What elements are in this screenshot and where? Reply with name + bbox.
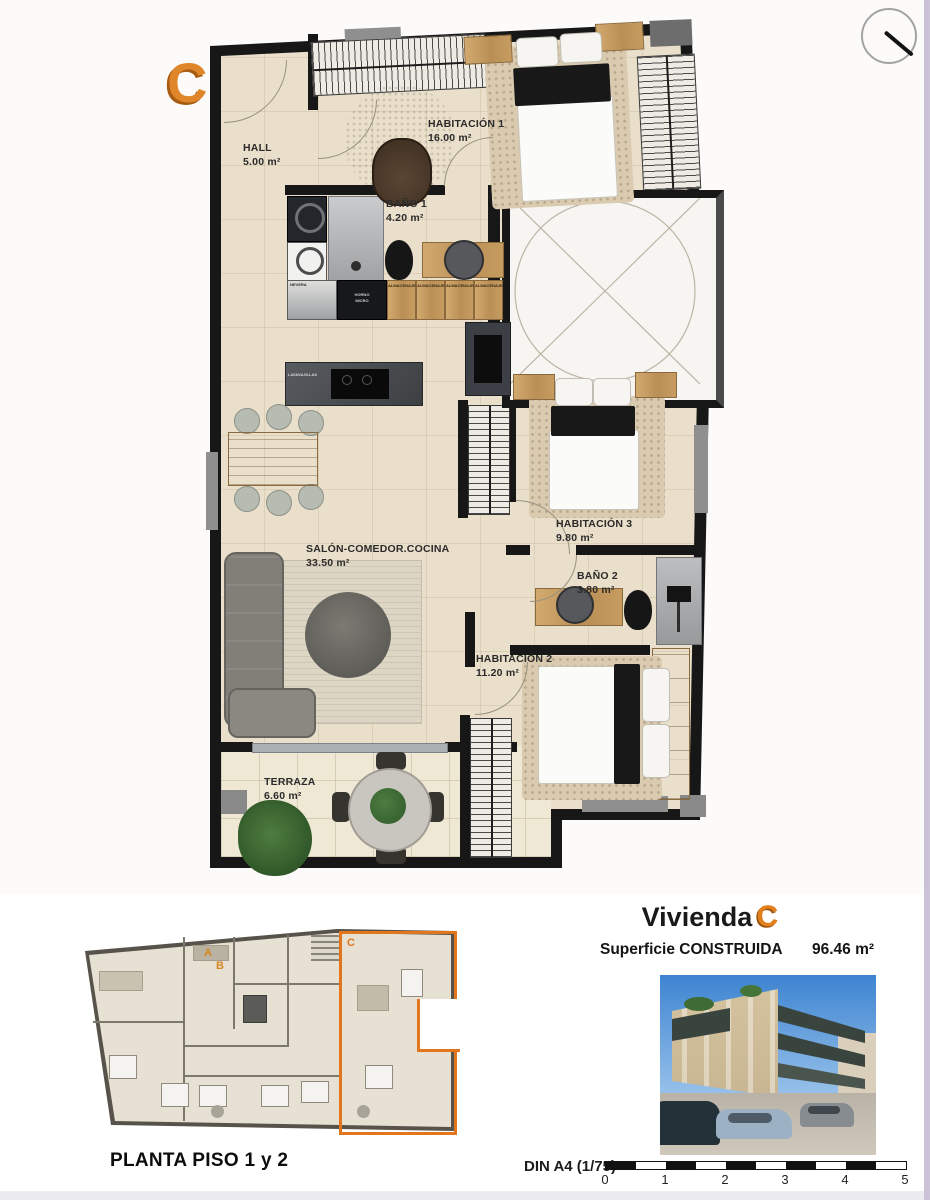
floorplan-page: C — [0, 0, 930, 1200]
room-label-terraza: TERRAZA6.60 m² — [264, 776, 316, 803]
surface-label: Superficie CONSTRUIDA — [600, 941, 783, 959]
oven-label-1: HORNO — [338, 293, 386, 297]
fridge: NEVERA — [287, 280, 337, 320]
unit-title: Vivienda C — [560, 900, 860, 934]
cabinet-4: ALMACENAJE — [474, 280, 503, 320]
scale-tick: 3 — [781, 1172, 788, 1187]
cabinet-1: ALMACENAJE — [387, 280, 416, 320]
wall-terraza-a — [221, 742, 253, 752]
cabinet-2-label: ALMACENAJE — [417, 284, 444, 288]
room-label-bano1: BAÑO 14.20 m² — [386, 198, 427, 225]
scale-ticks: 0 1 2 3 4 5 — [605, 1172, 905, 1188]
terraza-plant — [370, 788, 406, 824]
tall-kitchen-unit — [465, 322, 511, 396]
terraza-bush — [238, 800, 312, 876]
armchair — [372, 138, 432, 206]
kitchen-island: LAVAVAJILLAS — [285, 362, 423, 406]
unit-title-prefix: Vivienda — [642, 902, 753, 932]
compass-needle-icon — [884, 30, 914, 56]
photo-car-dark — [660, 1101, 720, 1145]
room-label-hab2: HABITACIÓN 211.20 m² — [476, 653, 552, 680]
window-hab3-right — [694, 425, 708, 513]
scale-bar — [605, 1161, 907, 1170]
dining-chair — [234, 486, 260, 512]
overview-unit-a-letter: A — [204, 947, 212, 959]
building-photo — [660, 975, 876, 1155]
dryer — [287, 196, 327, 242]
compass-icon — [861, 8, 917, 64]
fridge-label: NEVERA — [290, 283, 307, 287]
dishwasher-label: LAVAVAJILLAS — [288, 373, 317, 377]
wall-corridor-lower — [460, 715, 470, 860]
photo-roof-plants — [684, 997, 714, 1011]
room-label-hall: HALL5.00 m² — [243, 142, 281, 169]
dining-chair — [266, 490, 292, 516]
overview-stairs — [311, 935, 341, 961]
scale-tick: 2 — [721, 1172, 728, 1187]
overview-unit-b-letter: B — [216, 960, 224, 972]
wall-corridor-upper — [458, 400, 468, 518]
oven-micro: HORNO MICRO — [337, 280, 387, 320]
cabinet-2: ALMACENAJE — [416, 280, 445, 320]
sofa-chaise — [228, 688, 316, 738]
room-label-hab1: HABITACIÓN 116.00 m² — [428, 118, 504, 145]
page-edge-bottom — [0, 1191, 930, 1200]
wardrobe-corridor-lower — [470, 718, 512, 858]
cabinet-4-label: ALMACENAJE — [475, 284, 502, 288]
room-label-salon: SALÓN-COMEDOR.COCINA33.50 m² — [306, 543, 449, 570]
overview-unit-c-letter: C — [347, 937, 355, 949]
toilet-bano2 — [624, 590, 652, 630]
window-top-right — [649, 19, 692, 47]
dining-chair — [234, 408, 260, 434]
cabinet-3-label: ALMACENAJE — [446, 284, 473, 288]
wall-bano2-top-b — [576, 545, 701, 555]
oven-label-2: MICRO — [338, 299, 386, 303]
cabinet-1-label: ALMACENAJE — [388, 284, 415, 288]
unit-title-letter: C — [757, 900, 779, 933]
scale-tick: 5 — [901, 1172, 908, 1187]
overview-unit-c-notch — [417, 999, 460, 1052]
photo-car-silver — [716, 1109, 792, 1139]
surface-value: 96.46 m² — [812, 941, 874, 959]
toilet-bano1 — [385, 240, 413, 280]
wall-hab2-left-a — [465, 612, 475, 667]
pillar-terraza-left — [221, 790, 247, 814]
overview-caption: PLANTA PISO 1 y 2 — [110, 1150, 288, 1172]
scale-tick: 1 — [661, 1172, 668, 1187]
scale-tick: 4 — [841, 1172, 848, 1187]
photo-car-gray — [800, 1103, 854, 1127]
wardrobe-corridor-upper — [468, 405, 510, 515]
page-edge-right — [924, 0, 930, 1200]
dining-chair — [266, 404, 292, 430]
room-label-bano2: BAÑO 23.80 m² — [577, 570, 618, 597]
round-rug — [305, 592, 391, 678]
unit-letter-large: C — [167, 50, 207, 115]
window-left-salon — [206, 452, 218, 530]
terraza-glass-door — [252, 743, 448, 753]
scale-tick: 0 — [601, 1172, 608, 1187]
shower-bano1 — [328, 196, 384, 284]
sink-bano1 — [444, 240, 484, 280]
dining-chair — [298, 484, 324, 510]
overview-plan: A B C — [65, 925, 463, 1143]
shower-bano2 — [656, 557, 702, 645]
photo-roof-plants-2 — [740, 985, 762, 997]
dining-table — [228, 432, 318, 486]
cabinet-3: ALMACENAJE — [445, 280, 474, 320]
room-label-hab3: HABITACIÓN 39.80 m² — [556, 518, 632, 545]
